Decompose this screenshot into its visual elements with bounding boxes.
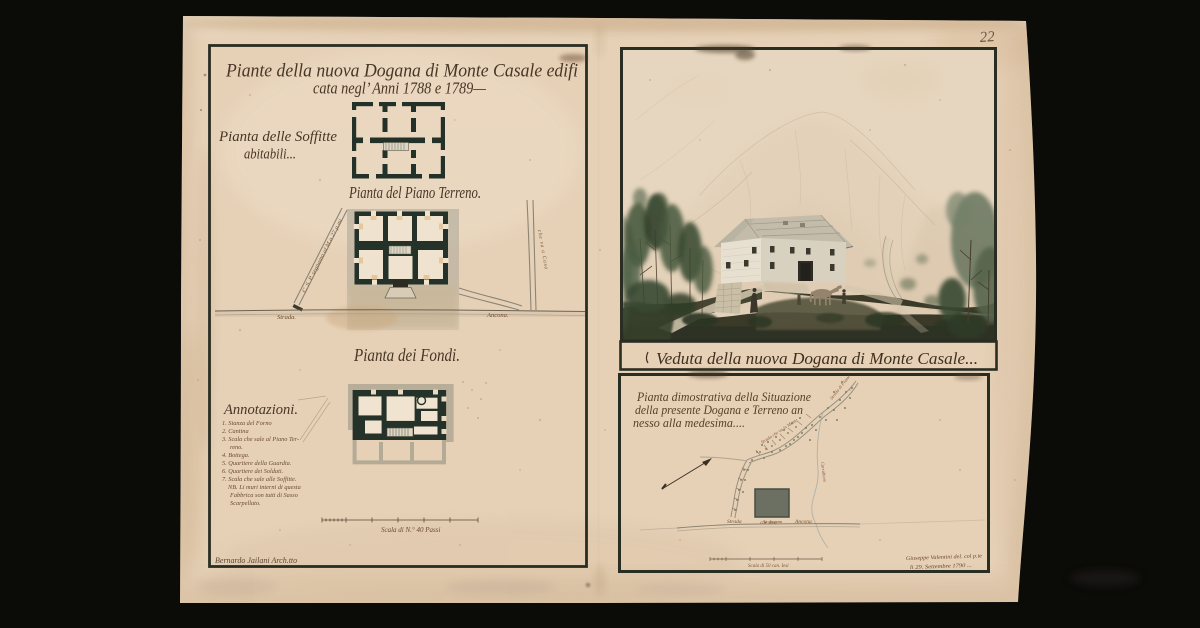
- svg-text:abitabili...: abitabili...: [244, 147, 296, 163]
- svg-text:reno.: reno.: [230, 444, 243, 451]
- svg-text:Strada.: Strada.: [277, 314, 296, 321]
- svg-text:Veduta della nuova Dogana di M: Veduta della nuova Dogana di Monte Casal…: [656, 349, 978, 368]
- svg-text:Ancona.: Ancona.: [486, 312, 509, 319]
- svg-text:22: 22: [979, 29, 996, 46]
- svg-text:7. Scala che sale alle Soffit: 7. Scala che sale alle Soffitte.: [222, 476, 296, 483]
- svg-text:Scala di N.° 40 Passi: Scala di N.° 40 Passi: [381, 526, 440, 534]
- svg-text:3. Scala che sale al Piano Te: 3. Scala che sale al Piano Ter-: [221, 436, 299, 443]
- svg-text:Strada: Strada: [727, 519, 742, 525]
- svg-text:Pianta dimostrativa della Situ: Pianta dimostrativa della Situazione: [636, 390, 811, 404]
- svg-text:della presente Dogana e Terren: della presente Dogana e Terreno an: [635, 403, 803, 417]
- svg-text:Annotazioni.: Annotazioni.: [223, 402, 298, 418]
- svg-text:Bernardo Jailani Arch.tto: Bernardo Jailani Arch.tto: [215, 556, 297, 565]
- svg-text:2. Cantina: 2. Cantina: [222, 428, 249, 435]
- svg-text:Pianta dei Fondi.: Pianta dei Fondi.: [353, 345, 460, 365]
- svg-text:nesso alla medesima....: nesso alla medesima....: [633, 416, 745, 430]
- svg-text:Scala di 50 can. Iesi: Scala di 50 can. Iesi: [748, 564, 789, 569]
- svg-text:Scarpellato.: Scarpellato.: [230, 500, 261, 507]
- svg-text:che va a: che va a: [760, 521, 777, 526]
- svg-text:NB. Li muri interni di questa: NB. Li muri interni di questa: [227, 484, 301, 491]
- svg-text:4. Bottega.: 4. Bottega.: [222, 452, 249, 459]
- svg-text:cata negl’ Anni 1788 e 1789—: cata negl’ Anni 1788 e 1789—: [313, 79, 487, 98]
- svg-text:1. Stanza del Forno: 1. Stanza del Forno: [222, 420, 272, 427]
- svg-text:5. Quartiere della Guardia.: 5. Quartiere della Guardia.: [222, 460, 291, 467]
- svg-text:Fabbrica son tutti di Sasso: Fabbrica son tutti di Sasso: [229, 492, 298, 499]
- svg-text:Pianta delle Soffitte: Pianta delle Soffitte: [218, 129, 337, 145]
- svg-text:6. Quartiere dei Soldati.: 6. Quartiere dei Soldati.: [222, 468, 283, 475]
- svg-text:Ancona: Ancona: [794, 519, 812, 525]
- svg-text:Pianta del Piano Terreno.: Pianta del Piano Terreno.: [348, 183, 481, 202]
